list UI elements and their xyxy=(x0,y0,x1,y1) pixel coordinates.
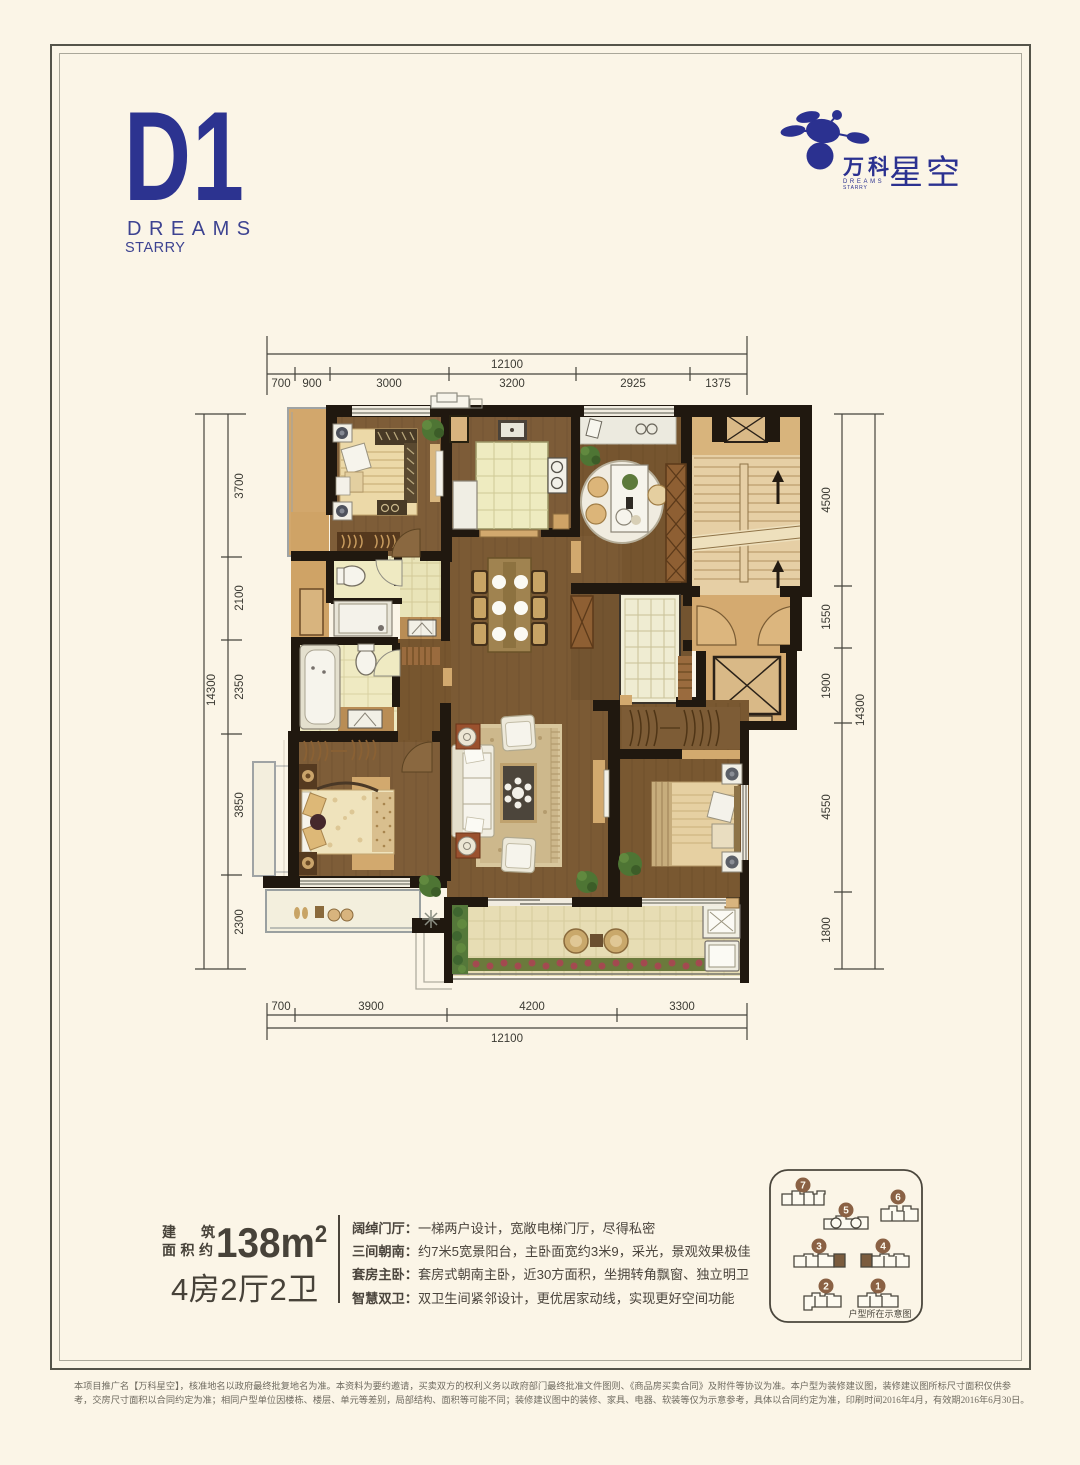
svg-text:2350: 2350 xyxy=(234,674,246,700)
svg-text:2300: 2300 xyxy=(234,909,246,935)
svg-text:3: 3 xyxy=(816,1242,822,1253)
svg-text:4550: 4550 xyxy=(821,794,833,820)
svg-text:3000: 3000 xyxy=(376,378,402,390)
svg-text:700: 700 xyxy=(271,378,290,390)
svg-text:3900: 3900 xyxy=(358,1001,384,1013)
svg-text:6: 6 xyxy=(895,1193,901,1204)
svg-text:14300: 14300 xyxy=(206,674,218,706)
svg-text:3700: 3700 xyxy=(234,473,246,499)
svg-text:1800: 1800 xyxy=(821,917,833,943)
svg-text:12100: 12100 xyxy=(491,359,523,371)
svg-text:2100: 2100 xyxy=(234,585,246,611)
svg-text:2925: 2925 xyxy=(620,378,646,390)
svg-text:1: 1 xyxy=(875,1282,881,1293)
svg-text:7: 7 xyxy=(800,1181,806,1192)
svg-text:14300: 14300 xyxy=(855,694,867,726)
svg-text:3300: 3300 xyxy=(669,1001,695,1013)
svg-text:900: 900 xyxy=(302,378,321,390)
svg-text:4500: 4500 xyxy=(821,487,833,513)
svg-text:3200: 3200 xyxy=(499,378,525,390)
svg-text:3850: 3850 xyxy=(234,792,246,818)
svg-text:4200: 4200 xyxy=(519,1001,545,1013)
svg-text:2: 2 xyxy=(823,1282,829,1293)
svg-text:4: 4 xyxy=(880,1242,886,1253)
svg-text:12100: 12100 xyxy=(491,1033,523,1045)
svg-text:1550: 1550 xyxy=(821,604,833,630)
svg-text:5: 5 xyxy=(843,1206,849,1217)
svg-text:1375: 1375 xyxy=(705,378,731,390)
svg-text:700: 700 xyxy=(271,1001,290,1013)
svg-text:户型所在示意图: 户型所在示意图 xyxy=(848,1308,911,1319)
svg-text:1900: 1900 xyxy=(821,673,833,699)
